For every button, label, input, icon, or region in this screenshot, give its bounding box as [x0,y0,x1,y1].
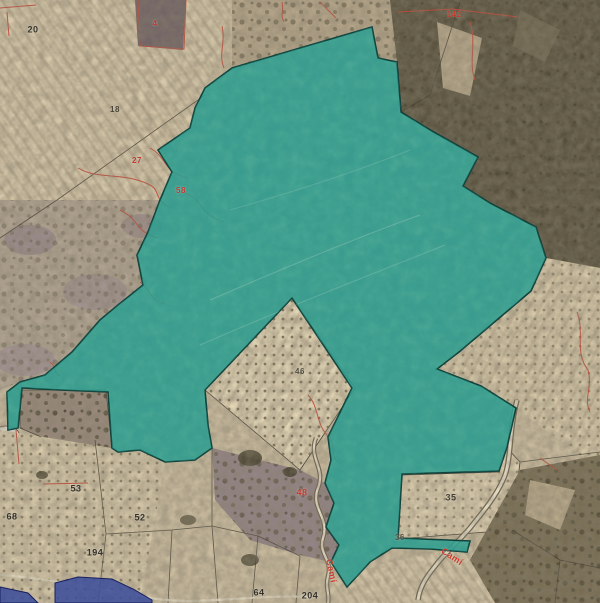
aerial-imagery [0,0,600,603]
map-viewport[interactable]: 2018414227584648536852194642043536CamíCa… [0,0,600,603]
